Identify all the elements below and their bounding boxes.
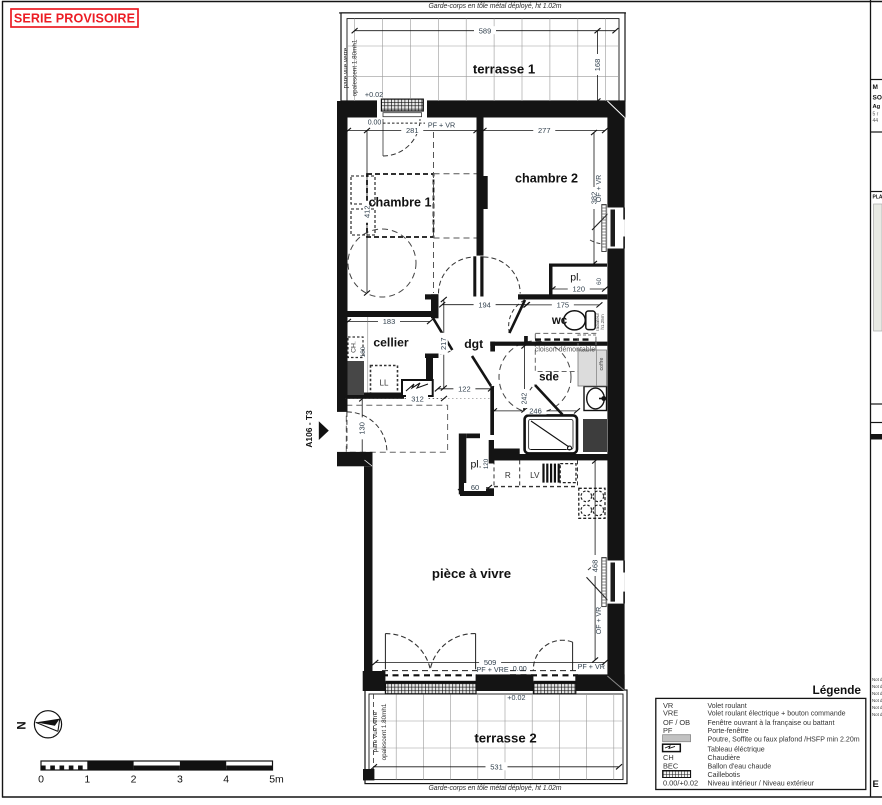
svg-text:chambre 2: chambre 2 (515, 172, 578, 186)
svg-text:2: 2 (131, 774, 137, 786)
svg-text:194: 194 (478, 300, 491, 309)
svg-text:LL: LL (380, 378, 389, 387)
svg-text:PLA: PLA (873, 195, 882, 201)
svg-text:SERIE PROVISOIRE: SERIE PROVISOIRE (14, 11, 135, 25)
svg-text:Tableau éléctrique: Tableau éléctrique (708, 746, 765, 753)
svg-text:312: 312 (411, 394, 424, 403)
svg-text:0.00: 0.00 (368, 120, 382, 127)
svg-text:5 r: 5 r (873, 112, 879, 118)
svg-text:242: 242 (522, 393, 529, 405)
svg-text:sde: sde (539, 371, 559, 383)
svg-text:OF + VR: OF + VR (596, 175, 603, 202)
svg-text:130: 130 (358, 422, 367, 435)
svg-text:chambre 1: chambre 1 (369, 196, 432, 210)
svg-text:Ag: Ag (873, 104, 881, 110)
svg-text:589: 589 (479, 26, 492, 35)
svg-text:281: 281 (406, 126, 419, 135)
svg-text:0: 0 (38, 774, 44, 786)
svg-text:246: 246 (529, 407, 542, 416)
svg-text:OF + VR: OF + VR (596, 607, 603, 634)
svg-text:Not du: Not du (872, 705, 882, 710)
svg-text:+0.02: +0.02 (507, 693, 525, 702)
svg-text:217: 217 (439, 337, 448, 350)
svg-text:60: 60 (596, 278, 603, 286)
svg-text:SO: SO (873, 95, 882, 102)
svg-text:Niveau intérieur / Niveau exté: Niveau intérieur / Niveau extérieur (708, 781, 815, 788)
svg-text:pièce à vivre: pièce à vivre (432, 566, 511, 581)
svg-text:0.00: 0.00 (513, 664, 527, 673)
svg-text:Not du: Not du (872, 712, 882, 717)
svg-text:4: 4 (223, 774, 229, 786)
svg-text:cloison démontable: cloison démontable (535, 347, 595, 354)
svg-text:Ballon d'eau chaude: Ballon d'eau chaude (708, 764, 772, 771)
svg-text:pare vue verre: pare vue verre (343, 47, 350, 88)
svg-text:N: N (17, 721, 29, 729)
svg-text:0.00/+0.02: 0.00/+0.02 (663, 779, 698, 788)
svg-text:Volet roulant: Volet roulant (708, 703, 747, 710)
svg-text:terrasse 2: terrasse 2 (474, 731, 536, 746)
svg-text:120: 120 (483, 458, 490, 469)
svg-text:BEC: BEC (663, 762, 679, 771)
svg-text:E: E (873, 779, 879, 790)
svg-text:Not du: Not du (872, 691, 882, 696)
svg-text:terrasse 1: terrasse 1 (473, 62, 535, 77)
svg-text:Poutre, Soffite ou faux plafon: Poutre, Soffite ou faux plafond /HSFP mi… (708, 737, 860, 744)
svg-text:3: 3 (177, 774, 183, 786)
svg-text:Not du: Not du (872, 698, 882, 703)
svg-text:122: 122 (458, 384, 471, 393)
svg-text:opalescent 1.80mh1: opalescent 1.80mh1 (351, 39, 358, 96)
svg-text:Garde-corps en tôle métal dépl: Garde-corps en tôle métal déployé, ht 1.… (429, 3, 562, 10)
svg-text:175: 175 (557, 301, 570, 310)
svg-text:468: 468 (591, 560, 600, 573)
svg-text:VRE: VRE (663, 708, 678, 717)
svg-text:pl.: pl. (470, 459, 481, 471)
svg-text:168: 168 (593, 59, 602, 72)
svg-text:CH.: CH. (350, 341, 357, 353)
svg-text:A106 - T3: A106 - T3 (304, 410, 314, 448)
svg-text:Volet roulant électrique + bou: Volet roulant électrique + bouton comman… (708, 710, 846, 717)
svg-text:R: R (505, 471, 511, 480)
svg-text:183: 183 (383, 317, 396, 326)
svg-text:120: 120 (572, 285, 585, 294)
svg-text:Caillebotis: Caillebotis (708, 772, 741, 779)
svg-text:opalescent 1.80mh1: opalescent 1.80mh1 (381, 703, 388, 760)
svg-text:Légende: Légende (812, 683, 861, 697)
svg-text:dgt: dgt (464, 337, 483, 351)
svg-text:LV: LV (530, 471, 540, 480)
svg-text:Not du: Not du (872, 677, 882, 682)
svg-text:h1.25m: h1.25m (600, 314, 605, 329)
svg-text:M: M (873, 84, 878, 91)
svg-text:CH: CH (663, 753, 674, 762)
svg-text:PF: PF (663, 726, 673, 735)
svg-text:wc: wc (551, 315, 568, 327)
svg-text:coffre: coffre (599, 357, 605, 370)
svg-text:+0.02: +0.02 (365, 90, 383, 99)
svg-text:Porte-fenêtre: Porte-fenêtre (708, 728, 749, 735)
svg-text:Not du: Not du (872, 684, 882, 689)
svg-text:PF + VR: PF + VR (578, 662, 605, 671)
svg-text:1: 1 (84, 774, 90, 786)
svg-text:Fenêtre ouvrant à la française: Fenêtre ouvrant à la française ou battan… (708, 720, 835, 727)
svg-text:pl.: pl. (570, 271, 581, 283)
svg-text:5m: 5m (269, 774, 284, 786)
svg-text:Garde-corps en tôle métal dépl: Garde-corps en tôle métal déployé, ht 1.… (429, 785, 562, 792)
svg-text:cellier: cellier (373, 336, 408, 350)
svg-text:PF + VR: PF + VR (428, 121, 455, 130)
svg-text:180: 180 (360, 346, 367, 357)
svg-text:60: 60 (471, 483, 479, 492)
svg-text:531: 531 (490, 762, 503, 771)
svg-text:44: 44 (873, 118, 879, 124)
svg-text:Chaudière: Chaudière (708, 755, 741, 762)
svg-text:PF + VRE: PF + VRE (477, 665, 509, 674)
svg-text:277: 277 (538, 126, 551, 135)
